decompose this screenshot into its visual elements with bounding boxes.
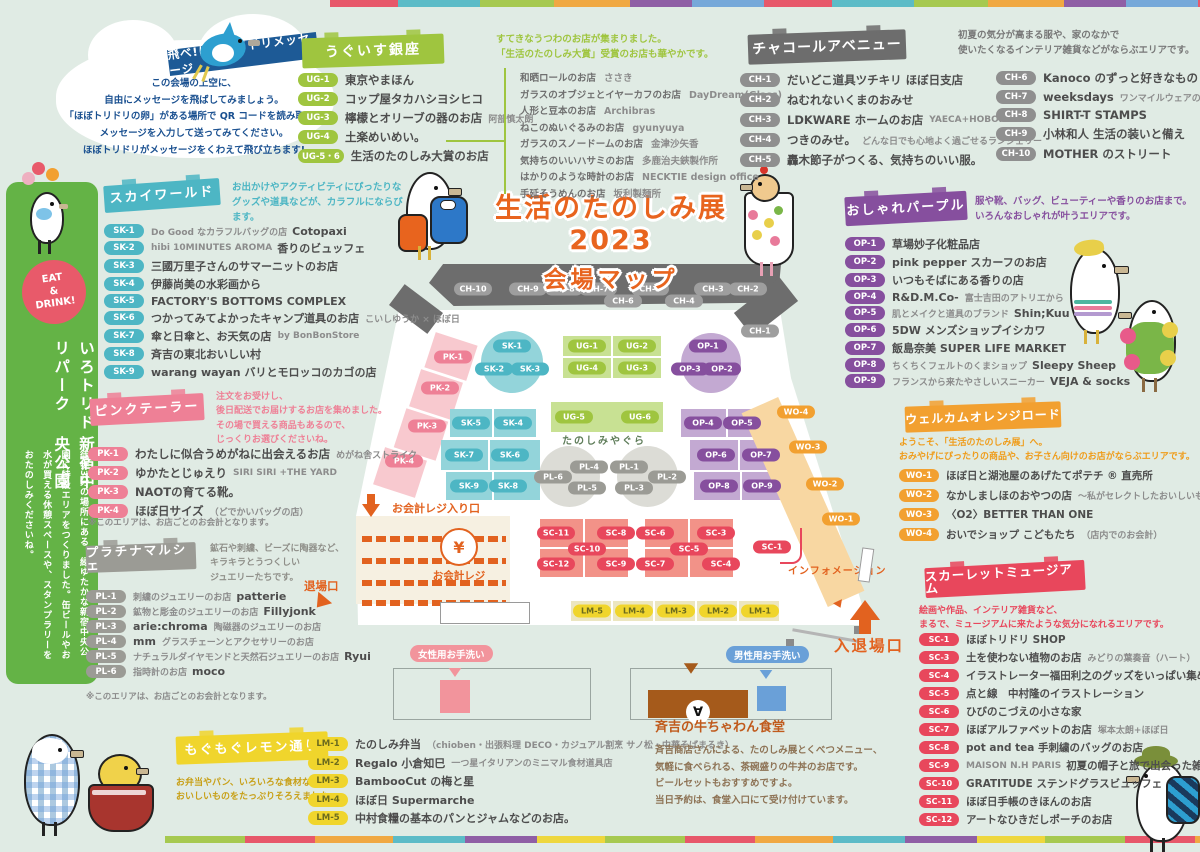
shop-item-SC-6: SC-6ひびのこづえの小さな家 xyxy=(919,704,1200,719)
shop-item-SK-4: SK-4伊藤尚美の水彩画から xyxy=(104,276,460,292)
shop-item-SC-12: SC-12アートなひきだしポーチのお店 xyxy=(919,812,1200,827)
section-items: CH-6Kanoco のずっと好きなものCH-7weeksdaysワンマイルウェ… xyxy=(996,70,1200,166)
toilet-female-arrow-icon xyxy=(449,668,462,677)
shop-item-PL-3: PL-3arie:chroma陶磁器のジュエリーのお店 xyxy=(86,620,371,633)
shop-item-PK-2: PK-2ゆかたとじゅえりSIRI SIRI +THE YARD xyxy=(88,465,417,481)
map-booth-SK-8: SK-8 xyxy=(489,480,527,493)
stall-pl xyxy=(539,446,600,507)
map-booth-LM-1: LM-1 xyxy=(741,605,779,618)
map-booth-SK-3: SK-3 xyxy=(511,363,549,376)
section-banner: スカイワールド xyxy=(103,178,221,213)
stall-sc xyxy=(585,519,628,547)
shop-item-SK-3: SK-3三國万里子さんのサマーニットのお店 xyxy=(104,258,460,274)
section-banner: うぐいす銀座 xyxy=(302,34,445,69)
area-section-welcome-orange-road: ウェルカムオレンジロード ようこそ、「生活のたのしみ展」へ。 おみやげにぴったり… xyxy=(897,398,1200,548)
shop-item-UG-2: UG-2コップ屋タカハシヨシヒコ xyxy=(298,91,533,107)
sc1-bracket xyxy=(780,528,802,564)
shop-item-PK-3: PK-3NAOTの育てる靴。 xyxy=(88,484,417,500)
cashier-label: お会計レジ xyxy=(424,568,494,583)
area-section-pink-tailor: ピンクテーラー 注文をお受けし、 後日配送でお届けするお店を集めました。 その場… xyxy=(86,390,386,535)
stall-sk xyxy=(494,409,536,437)
shop-item-OP-1: OP-1草場妙子化粧品店 xyxy=(845,236,1130,252)
map-booth-LM-5: LM-5 xyxy=(573,605,611,618)
shop-item-CH-6: CH-6Kanoco のずっと好きなもの xyxy=(996,70,1200,86)
shop-item-SK-6: SK-6つかってみてよかったキャンプ道具のお店こいしゆうか × ほぼ日 xyxy=(104,310,460,326)
stall-ug xyxy=(563,358,611,378)
section-title: プラチナマルシェ xyxy=(86,543,197,572)
section-banner: プラチナマルシェ xyxy=(86,542,197,573)
shop-item-UG-4: UG-4土楽めいめい。 xyxy=(298,129,533,145)
map-booth-SC-10: SC-10 xyxy=(568,543,606,556)
section-desc: 絵画や作品、インテリア雑貨など、 まるで、ミュージアムに来たような気分になれるエ… xyxy=(919,604,1199,633)
map-booth-SK-2: SK-2 xyxy=(475,363,513,376)
section-desc: 注文をお受けし、 後日配送でお届けするお店を集めました。 その場で買える商品もあ… xyxy=(216,390,456,448)
gate-line xyxy=(792,628,858,642)
shop-item-WO-1: WO-1ほぼ日と湖池屋のあげたてポテチ ® 直売所 xyxy=(899,468,1200,483)
dining-section: 斉吉の牛ちゃわん食堂 斉吉商店さんによる、たのしみ展とくべつメニュー、 気軽に食… xyxy=(655,716,945,810)
section-desc: お出かけやアクティビティにぴったりな グッズや道具などが、カラフルにならびます。 xyxy=(232,180,412,226)
map-booth-UG-4: UG-4 xyxy=(568,362,606,375)
map-booth-LM-4: LM-4 xyxy=(615,605,653,618)
dining-block xyxy=(648,690,748,718)
map-booth-PL-2: PL-2 xyxy=(648,471,686,484)
eat-drink-badge: EAT & DRINK! xyxy=(18,256,90,328)
stall-sk xyxy=(490,440,540,470)
map-booth-PL-1: PL-1 xyxy=(610,461,648,474)
map-booth-OP-1: OP-1 xyxy=(689,340,727,353)
map-booth-SC-1: SC-1 xyxy=(753,541,791,554)
dining-arrow-icon xyxy=(684,663,698,673)
map-booth-SK-4: SK-4 xyxy=(494,417,532,430)
stall-wo xyxy=(742,397,865,607)
map-booth-SC-11: SC-11 xyxy=(537,527,575,540)
section-note: ※このエリアは、お店ごとのお会計となります。 xyxy=(88,516,274,528)
map-booth-UG-2: UG-2 xyxy=(618,340,656,353)
section-items: PL-1刺繍のジュエリーのお店patteriePL-2鉱物と彫金のジュエリーのお… xyxy=(86,590,371,680)
yen-icon: ¥ xyxy=(440,528,478,566)
section-desc: 鉱石や刺繍、ビーズに陶器など、 キラキラとうつくしい ジュエリーたちです。 xyxy=(210,542,390,585)
stall-sc xyxy=(690,549,733,577)
shop-item-CH-7: CH-7weeksdaysワンマイルウェアのお店 xyxy=(996,90,1200,104)
stall-lm xyxy=(739,601,779,621)
shop-item-SC-7: SC-7ほぼアルファベットのお店塚本太朗+ほぼ日 xyxy=(919,722,1200,737)
section-items: PK-1わたしに似合うめがねに出会えるお店めがね舎ストライクPK-2ゆかたとじゅ… xyxy=(88,446,417,522)
toilet-female-label: 女性用お手洗い xyxy=(410,645,493,662)
shop-item-SC-10: SC-10GRATITUDE ステンドグラスビュッフェ xyxy=(919,776,1200,791)
stall-sc xyxy=(645,519,688,547)
section-items: WO-1ほぼ日と湖池屋のあげたてポテチ ® 直売所WO-2なかしましほのおやつの… xyxy=(899,468,1200,546)
message-body: この会場の上空に、 自由にメッセージを飛ばしてみましょう。 「ほぼトリドリの卵」… xyxy=(54,76,334,159)
map-booth-UG-5: UG-5 xyxy=(555,411,593,424)
map-booth-LM-3: LM-3 xyxy=(657,605,695,618)
map-booth-SC-9: SC-9 xyxy=(597,558,635,571)
shop-item-SK-8: SK-8斉吉の東北おいしい村 xyxy=(104,346,460,362)
shop-item-SC-5: SC-5点と線 中村隆のイラストレーション xyxy=(919,686,1200,701)
shop-item-PL-4: PL-4mmグラスチェーンとアクセサリーのお店 xyxy=(86,635,371,648)
shop-item-PL-1: PL-1刺繍のジュエリーのお店patterie xyxy=(86,590,371,603)
gate-label: 入退場口 xyxy=(834,634,904,656)
stall-op xyxy=(681,409,726,437)
map-booth-SC-12: SC-12 xyxy=(537,558,575,571)
map-booth-PL-5: PL-5 xyxy=(568,482,606,495)
stall-sc xyxy=(540,519,583,547)
map-booth-SK-5: SK-5 xyxy=(452,417,490,430)
dining-body: 斉吉商店さんによる、たのしみ展とくべつメニュー、 気軽に食べられる、茶碗盛りの牛… xyxy=(655,743,945,810)
map-booth-PL-3: PL-3 xyxy=(615,482,653,495)
shop-item-SC-8: SC-8pot and tea 手刺繍のバッグのお店 xyxy=(919,740,1200,755)
stall-op xyxy=(742,472,786,500)
toilet-male-label: 男性用お手洗い xyxy=(726,646,809,663)
stall-sc xyxy=(540,549,583,577)
stall-ug xyxy=(563,336,611,356)
shop-item-PK-1: PK-1わたしに似合うめがねに出会えるお店めがね舎ストライク xyxy=(88,446,417,462)
dining-title: 斉吉の牛ちゃわん食堂 xyxy=(655,716,945,735)
stall-sk xyxy=(494,472,540,500)
section-title: スカイワールド xyxy=(109,185,215,205)
section-title: ウェルカムオレンジロード xyxy=(905,408,1061,425)
map-booth-OP-3: OP-3 xyxy=(671,363,709,376)
shop-item-UG-1: UG-1東京やまほん xyxy=(298,72,533,88)
section-title: おしゃれパープル xyxy=(846,199,966,218)
shop-item-OP-7: OP-7飯島奈美 SUPER LIFE MARKET xyxy=(845,340,1130,356)
stall-sk xyxy=(446,472,492,500)
stall-sk xyxy=(450,409,492,437)
map-booth-SC-8: SC-8 xyxy=(597,527,635,540)
section-title: ピンクテーラー xyxy=(94,400,200,418)
shop-item-PL-5: PL-5ナチュラルダイヤモンドと天然石ジュエリーのお店Ryui xyxy=(86,650,371,663)
stall-ug xyxy=(613,336,661,356)
map-booth-CH-6: CH-6 xyxy=(604,295,642,308)
shop-item-SK-2: SK-2hibi 10MINUTES AROMA香りのビュッフェ xyxy=(104,240,460,256)
stall-sc xyxy=(585,549,628,577)
park-body: 徒歩3分の場所にある、緑ゆたかな新宿中央公園に特設エリアをつくりました。缶ビール… xyxy=(14,450,92,665)
washi-tape-top xyxy=(330,0,1200,7)
stall-sk xyxy=(481,331,543,393)
shop-item-SK-9: SK-9warang wayan バリとモロッコのカゴの店 xyxy=(104,364,460,380)
area-section-mogumogu-lemon-street: もぐもぐレモン通り お弁当やパン、いろいろな食材など、 おいしいものをたっぷりそ… xyxy=(172,726,652,836)
stall-op xyxy=(694,472,740,500)
toilet-female-block xyxy=(440,680,470,713)
area-section-oshare-purple: おしゃれパープル 服や靴、バッグ、ビューティーや香りのお店まで。 いろんなおしゃ… xyxy=(843,188,1200,388)
map-booth-SC-5: SC-5 xyxy=(670,543,708,556)
map-booth-SC-3: SC-3 xyxy=(697,527,735,540)
connector-line xyxy=(446,140,504,142)
shop-item-SK-5: SK-5FACTORY'S BOTTOMS COMPLEX xyxy=(104,294,460,308)
map-booth-OP-8: OP-8 xyxy=(700,480,738,493)
shop-item-OP-6: OP-65DW メンズショップイシカワ xyxy=(845,322,1130,338)
shop-item-UG-3: UG-3檸檬とオリーブの器のお店阿部慎太朗 xyxy=(298,110,533,126)
shop-item-CH-8: CH-8SHIRT-T STAMPS xyxy=(996,108,1200,122)
map-booth-OP-9: OP-9 xyxy=(743,480,781,493)
stall-lm xyxy=(697,601,737,621)
shop-item-PL-6: PL-6指時計のお店moco xyxy=(86,665,371,678)
stall-lm xyxy=(571,601,611,621)
shop-item-SK-1: SK-1Do Good なカラフルバッグの店Cotopaxi xyxy=(104,224,460,238)
bird-balloons-icon xyxy=(14,160,84,260)
map-booth-SC-6: SC-6 xyxy=(636,527,674,540)
section-title: もぐもぐレモン通り xyxy=(184,739,319,757)
section-title: スカーレットミュージアム xyxy=(924,562,1085,595)
shop-item-SC-3: SC-3土を使わない植物のお店みどりの葉奏音（ハート） xyxy=(919,650,1200,665)
map-booth-WO-4: WO-4 xyxy=(777,406,815,419)
map-booth-PL-4: PL-4 xyxy=(570,461,608,474)
shop-item-SC-11: SC-11ほぼ日手帳のきほんのお店 xyxy=(919,794,1200,809)
toilet-male-block xyxy=(757,686,786,711)
map-booth-CH-4: CH-4 xyxy=(665,295,703,308)
building-outline xyxy=(393,668,591,720)
shop-item-SK-7: SK-7傘と日傘と、お天気の店by BonBonStore xyxy=(104,328,460,344)
map-booth-SK-6: SK-6 xyxy=(491,449,529,462)
stall-ug xyxy=(551,402,663,432)
stall-op xyxy=(740,440,785,470)
building-outline xyxy=(630,668,832,720)
section-desc: 服や靴、バッグ、ビューティーや香りのお店まで。 いろんなおしゃれが叶うエリアです… xyxy=(975,194,1200,224)
map-booth-OP-4: OP-4 xyxy=(684,417,722,430)
section-desc: ようこそ、「生活のたのしみ展」へ。 おみやげにぴったりの商品や、お子さん向けのお… xyxy=(899,436,1199,465)
section-items: UG-1東京やまほんUG-2コップ屋タカハシヨシヒコUG-3檸檬とオリーブの器の… xyxy=(298,72,533,167)
shop-item-OP-5: OP-5肌とメイクと道具のブランドShin;Kuu xyxy=(845,306,1130,320)
stall-ug xyxy=(613,358,661,378)
stall-op xyxy=(681,333,741,393)
map-booth-UG-6: UG-6 xyxy=(621,411,659,424)
map-booth-CH-1: CH-1 xyxy=(741,325,779,338)
shop-item-OP-8: OP-8ちくちくフェルトのくまショップSleepy Sheep xyxy=(845,358,1130,372)
stall-op xyxy=(690,440,738,470)
information-desk xyxy=(858,547,875,582)
award-shop: 手延そうめんのお店坂利製麺所 xyxy=(520,186,782,200)
gate-post xyxy=(786,639,794,647)
section-banner: スカーレットミュージアム xyxy=(924,560,1085,598)
map-booth-WO-2: WO-2 xyxy=(806,478,844,491)
section-banner: ピンクテーラー xyxy=(89,393,204,426)
map-booth-WO-3: WO-3 xyxy=(789,441,827,454)
information-label: インフォメーション xyxy=(788,562,887,577)
map-booth-OP-2: OP-2 xyxy=(703,363,741,376)
stall-sc xyxy=(690,519,733,547)
stall-lm xyxy=(655,601,695,621)
map-booth-OP-6: OP-6 xyxy=(697,449,735,462)
area-section-charcoal-avenue: チャコールアベニュー 初夏の気分が高まる服や、家のなかで 使いたくなるインテリア… xyxy=(740,22,1200,172)
shop-item-WO-4: WO-4おいでショップ こどもたち（店内でのお会計） xyxy=(899,527,1200,542)
section-items: SK-1Do Good なカラフルバッグの店CotopaxiSK-2hibi 1… xyxy=(104,224,460,382)
map-booth-PL-6: PL-6 xyxy=(534,471,572,484)
washi-tape-bottom xyxy=(165,836,1200,843)
section-items: OP-1草場妙子化粧品店OP-2pink pepper スカーフのお店OP-3い… xyxy=(845,236,1130,390)
page: { "page": {"title_line1": "生活のたのしみ展 2023… xyxy=(0,0,1200,843)
shop-item-CH-10: CH-10MOTHER のストリート xyxy=(996,146,1200,162)
park-title-line2: いろトリドリパーク xyxy=(6,340,98,436)
map-booth-WO-1: WO-1 xyxy=(822,513,860,526)
section-banner: もぐもぐレモン通り xyxy=(176,731,329,764)
area-section-scarlet-museum: スカーレットミュージアム 絵画や作品、インテリア雑貨など、 まるで、ミュージアム… xyxy=(915,556,1200,836)
stall-lm xyxy=(613,601,653,621)
map-booth-LM-2: LM-2 xyxy=(699,605,737,618)
map-booth-SC-7: SC-7 xyxy=(636,558,674,571)
stall-sc xyxy=(645,549,688,577)
shop-item-OP-4: OP-4R&D.M.Co-富士吉田のアトリエから xyxy=(845,290,1130,304)
shop-item-SC-4: SC-4イラストレーター福田利之のグッズをいっぱい集めたお店 xyxy=(919,668,1200,683)
bird-flying-icon xyxy=(192,22,262,82)
shop-item-CH-9: CH-9小林和人 生活の装いと備え xyxy=(996,126,1200,142)
page-title: 生活のたのしみ展 2023 会場マップ xyxy=(448,186,774,294)
section-banner: おしゃれパープル xyxy=(844,191,967,226)
shop-item-OP-3: OP-3いつもそばにある香りの店 xyxy=(845,272,1130,288)
bird-gingham-icon xyxy=(18,730,88,843)
shop-item-WO-2: WO-2なかしましほのおやつの店～私がセレクトしたおいしいものたち～ xyxy=(899,488,1200,503)
section-desc: 初夏の気分が高まる服や、家のなかで 使いたくなるインテリア雑貨などがならぶエリア… xyxy=(958,28,1198,58)
shop-item-SC-1: SC-1ほぼトリドリ SHOP xyxy=(919,632,1200,647)
map-booth-UG-3: UG-3 xyxy=(618,362,656,375)
gate-post xyxy=(854,626,862,634)
map-booth-OP-7: OP-7 xyxy=(742,449,780,462)
stall-op xyxy=(728,409,776,437)
shop-item-OP-2: OP-2pink pepper スカーフのお店 xyxy=(845,254,1130,270)
section-note: ※このエリアは、お店ごとのお会計となります。 xyxy=(86,690,272,702)
shop-item-UG-5・6: UG-5・6生活のたのしみ大賞のお店 xyxy=(298,148,533,164)
map-booth-OP-5: OP-5 xyxy=(723,417,761,430)
section-banner: チャコールアベニュー xyxy=(748,29,907,64)
section-title: チャコールアベニュー xyxy=(752,37,902,56)
shop-item-PL-2: PL-2鉱物と彫金のジュエリーのお店Fillyjonk xyxy=(86,605,371,618)
map-booth-SK-7: SK-7 xyxy=(445,449,483,462)
map-booth-SK-1: SK-1 xyxy=(493,340,531,353)
area-section-sky-world: スカイワールド お出かけやアクティビティにぴったりな グッズや道具などが、カラフ… xyxy=(100,176,400,376)
title-line2: 会場マップ xyxy=(448,260,774,294)
area-section-platinum-marche: プラチナマルシェ 鉱石や刺繍、ビーズに陶器など、 キラキラとうつくしい ジュエリ… xyxy=(84,540,384,705)
map-booth-SK-9: SK-9 xyxy=(450,480,488,493)
bird-in-pot-icon xyxy=(80,752,160,847)
section-title: うぐいす銀座 xyxy=(325,42,421,59)
shop-item-LM-5: LM-5中村食糧の基本のパンとジャムなどのお店。 xyxy=(308,810,734,826)
shop-item-SC-9: SC-9MAISON N.H PARIS初夏の帽子と旅で出会った雑貨 xyxy=(919,758,1200,773)
shop-item-OP-9: OP-9フランスから来たやさしいスニーカーVEJA & socks xyxy=(845,374,1130,388)
stall-pl xyxy=(617,446,678,507)
cashier-counter xyxy=(440,602,530,624)
section-banner: ウェルカムオレンジロード xyxy=(905,401,1062,432)
shop-item-WO-3: WO-3〈O2〉BETTER THAN ONE xyxy=(899,507,1200,522)
map-booth-SC-4: SC-4 xyxy=(702,558,740,571)
section-items: SC-1ほぼトリドリ SHOPSC-3土を使わない植物のお店みどりの葉奏音（ハー… xyxy=(919,632,1200,830)
toilet-male-arrow-icon xyxy=(760,670,773,679)
map-booth-UG-1: UG-1 xyxy=(568,340,606,353)
yagura-label: たのしみやぐら xyxy=(562,432,646,447)
